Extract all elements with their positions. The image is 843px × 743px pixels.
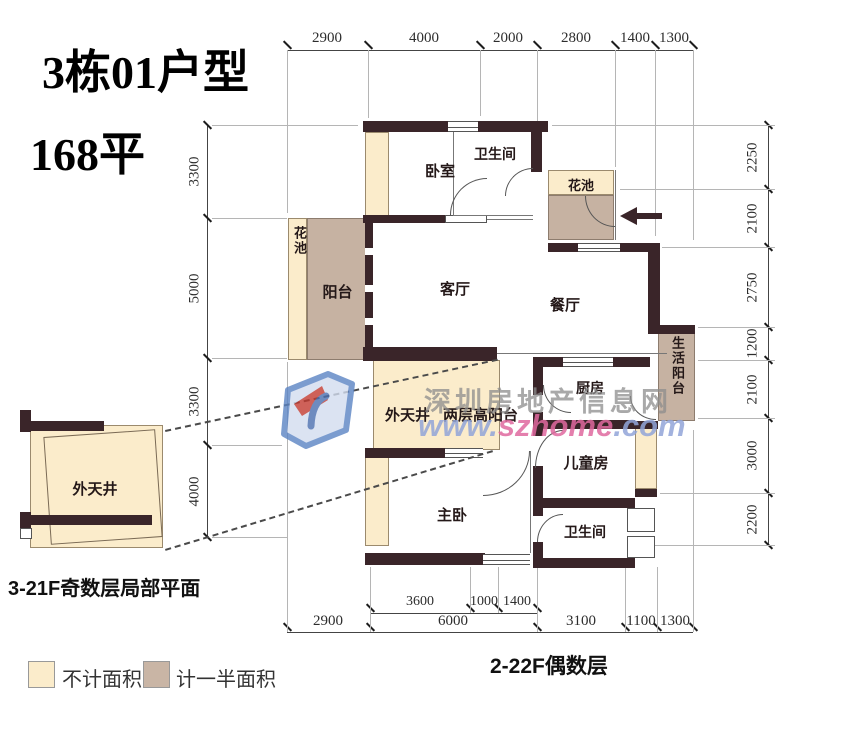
dim-label: 1400 — [487, 594, 547, 610]
ext-line — [698, 418, 775, 419]
wall — [365, 448, 445, 458]
door-arc — [505, 168, 533, 196]
ext-line — [698, 360, 775, 361]
ext-line — [212, 125, 358, 126]
watermark-url-tld: .com — [613, 408, 685, 443]
room-label-balcony: 阳台 — [307, 281, 368, 302]
wall — [548, 243, 578, 252]
wall — [533, 357, 563, 367]
wall — [620, 243, 648, 252]
wall — [26, 515, 152, 525]
wall — [648, 243, 660, 327]
wall — [26, 421, 104, 431]
sliding-door-gap — [365, 318, 373, 325]
door-arc — [450, 178, 487, 215]
plan-title: 3栋01户型 — [42, 36, 249, 102]
window — [483, 554, 530, 565]
bedroom-side-strip-zone — [365, 132, 389, 218]
watermark-url-domain: szhome — [498, 408, 613, 443]
window — [448, 121, 478, 132]
dim-label: 3100 — [551, 613, 611, 630]
ext-line — [552, 125, 775, 126]
ext-line — [620, 189, 775, 190]
wall — [613, 357, 650, 367]
ext-line — [212, 537, 287, 538]
dim-label: 2750 — [745, 258, 762, 318]
ext-line — [660, 493, 775, 494]
ext-line — [287, 50, 288, 213]
ext-line — [537, 50, 538, 124]
dim-label: 4000 — [394, 30, 454, 47]
room-label-living: 客厅 — [405, 278, 505, 299]
watermark-url-www: www. — [418, 408, 498, 443]
ext-line — [212, 358, 287, 359]
ext-line — [370, 567, 371, 632]
dim-label: 2900 — [298, 613, 358, 630]
bathroom-cabinet — [627, 536, 655, 558]
dim-tick — [283, 40, 292, 49]
thin-line — [497, 353, 667, 354]
thin-line — [530, 451, 531, 553]
wall — [533, 558, 635, 568]
wall — [363, 347, 497, 361]
watermark-logo — [276, 368, 362, 452]
room-label-flower-top: 花池 — [548, 175, 614, 194]
plan-area: 168平 — [30, 118, 145, 184]
ext-line — [498, 567, 499, 613]
room-label-courtyard-detail: 外天井 — [45, 478, 145, 499]
ext-line — [637, 545, 775, 546]
legend-swatch-half-area — [143, 661, 170, 688]
floors-caption: 2-22F偶数层 — [490, 650, 608, 680]
thin-line — [453, 215, 533, 216]
sliding-door-gap — [365, 248, 373, 255]
wall — [365, 553, 485, 565]
ext-line — [470, 567, 471, 613]
window — [563, 357, 613, 367]
ext-line — [693, 430, 694, 632]
thin-line — [487, 219, 533, 220]
ext-line — [693, 50, 694, 240]
legend-label-half-area: 计一半面积 — [176, 663, 276, 692]
dim-label: 3600 — [390, 594, 450, 610]
window — [578, 243, 620, 252]
dim-line-top — [287, 50, 693, 51]
wall — [635, 489, 657, 497]
legend-label-no-area: 不计面积 — [62, 663, 142, 692]
dim-label: 2100 — [745, 360, 762, 420]
dim-label: 6000 — [423, 613, 483, 630]
room-label-bath-bottom: 卫生间 — [540, 522, 630, 542]
dim-label: 2800 — [546, 30, 606, 47]
floor-plan-canvas: 3栋01户型 168平 2900 4000 2000 2800 1400 130… — [0, 0, 843, 743]
ext-line — [480, 50, 481, 116]
room-label-kids: 儿童房 — [541, 452, 631, 473]
dim-line-bottom-main — [287, 632, 693, 633]
detail-caption: 3-21F奇数层局部平面 — [8, 572, 200, 601]
dim-label: 1300 — [644, 30, 704, 47]
room-label-flower-left: 花池 — [290, 226, 309, 256]
wall — [363, 215, 445, 223]
ext-line — [698, 327, 775, 328]
ext-line — [655, 50, 656, 236]
dim-label: 2250 — [745, 128, 762, 188]
ext-line — [368, 50, 369, 118]
ext-line — [662, 247, 775, 248]
wall — [533, 498, 635, 508]
dim-label: 2200 — [745, 490, 762, 550]
detail-corner-box — [20, 528, 32, 539]
thin-line — [615, 170, 616, 240]
ext-line — [657, 567, 658, 632]
dim-label: 2000 — [478, 30, 538, 47]
watermark-url: www.szhome.com — [418, 408, 686, 444]
room-label-master: 主卧 — [407, 504, 497, 525]
ext-line — [537, 567, 538, 632]
ext-line — [212, 445, 282, 446]
dim-label: 4000 — [187, 462, 204, 522]
wall — [648, 325, 695, 334]
dim-label: 2900 — [297, 30, 357, 47]
dim-label: 5000 — [187, 259, 204, 319]
dim-label: 3300 — [187, 142, 204, 202]
dim-label: 3000 — [745, 426, 762, 486]
legend-swatch-no-area — [28, 661, 55, 688]
dim-tick — [364, 40, 373, 49]
bathroom-cabinet — [627, 508, 655, 532]
dim-line-left — [207, 125, 208, 537]
dim-label: 1300 — [645, 613, 705, 630]
ext-line — [212, 218, 287, 219]
dim-label: 2100 — [745, 189, 762, 249]
reference-dashed-line — [165, 450, 493, 551]
ext-line — [615, 50, 616, 167]
door-arc — [483, 451, 530, 496]
wall — [533, 508, 543, 516]
ext-line — [625, 567, 626, 632]
door-leaf — [445, 215, 487, 223]
entry-arrow-shaft — [636, 213, 662, 219]
room-label-dining: 餐厅 — [515, 294, 615, 315]
room-label-bath-top: 卫生间 — [455, 144, 535, 164]
master-side-strip-zone — [365, 451, 389, 546]
entry-arrow-icon — [620, 207, 637, 225]
